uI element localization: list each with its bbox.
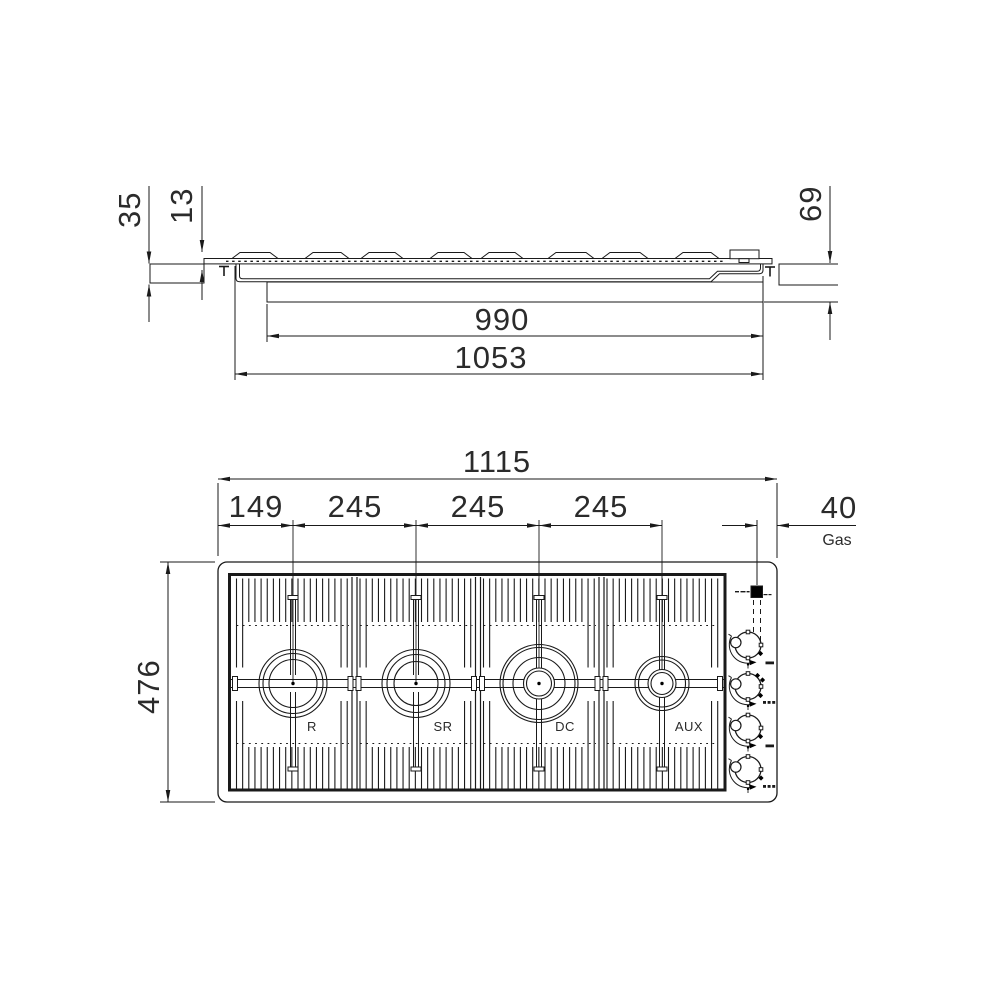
- knob-position-mark: [746, 698, 750, 702]
- grate-arm-cap: [411, 596, 421, 600]
- dimension-arrow: [751, 372, 763, 377]
- grate-arm-cap: [348, 677, 353, 691]
- dimension-arrow: [147, 285, 152, 297]
- knob-position-mark: [746, 656, 750, 660]
- dim-476-label: 476: [131, 659, 166, 714]
- gas-connection-micro-text: [764, 594, 768, 595]
- knob-position-mark: [746, 755, 750, 759]
- knob-position-mark: [746, 781, 750, 785]
- worktop-right: [779, 264, 838, 285]
- grate-arm-cap: [657, 767, 667, 771]
- dim-245b-label: 245: [451, 489, 506, 524]
- gas-connection-micro-text: [769, 594, 772, 595]
- dim-40-label: 40: [821, 490, 857, 525]
- side-elevation-view: 35 13 69 990 1053: [112, 186, 838, 380]
- grate-arm-cap: [356, 677, 361, 691]
- knob-flame-mark: [747, 705, 749, 707]
- top-plan-view: 1115 149 245 245 245 40 Gas 476 R SR DC …: [131, 444, 857, 802]
- knob-flame-mark: [747, 663, 749, 665]
- flame-level-dots: [763, 701, 766, 704]
- knob-position-mark: [746, 630, 750, 634]
- hob-lower-body: [267, 282, 763, 302]
- dim-245a-label: 245: [328, 489, 383, 524]
- dimension-arrow: [235, 372, 247, 377]
- burner-label-r: R: [307, 719, 317, 734]
- knob-ignition-circle: [731, 679, 741, 689]
- pan-support-foot: [305, 253, 349, 259]
- top-view-geometry: [160, 477, 856, 802]
- knob-flame-mark: [747, 746, 749, 748]
- gas-connection-micro-text: [735, 591, 739, 592]
- dimension-arrow: [200, 240, 205, 252]
- pan-support-foot: [481, 253, 523, 259]
- grate-arm-cap: [288, 767, 298, 771]
- grate-arm-cap: [288, 596, 298, 600]
- dimension-arrow: [166, 790, 171, 802]
- flame-level-dash: [766, 662, 775, 665]
- knob-flame-mark: [747, 788, 749, 790]
- dimension-arrow: [147, 252, 152, 264]
- flame-level-dots: [763, 785, 766, 788]
- dim-69-label: 69: [793, 186, 828, 222]
- flame-level-dots: [772, 701, 775, 704]
- dim-990-label: 990: [475, 302, 530, 337]
- dim-1053-label: 1053: [455, 340, 528, 375]
- dimension-arrow: [828, 302, 833, 314]
- knob-position-mark: [746, 739, 750, 743]
- grate-arm-cap: [472, 677, 477, 691]
- pan-support-foot: [361, 253, 403, 259]
- burner-center-dot: [537, 682, 540, 685]
- pan-support-foot: [232, 253, 278, 259]
- dim-245c-label: 245: [574, 489, 629, 524]
- knob-position-mark: [746, 713, 750, 717]
- pan-support-foot: [430, 253, 472, 259]
- grate-arm-cap: [480, 677, 485, 691]
- dimension-arrow: [828, 251, 833, 263]
- grate-arm-cap: [411, 767, 421, 771]
- burner-center-dot: [414, 682, 417, 685]
- dimension-arrow: [751, 334, 763, 339]
- burner-label-sr: SR: [433, 719, 452, 734]
- knob-profile: [730, 250, 759, 259]
- gas-connection-micro-text: [741, 591, 746, 592]
- gas-connection-square: [751, 586, 763, 598]
- dimension-arrow: [293, 523, 305, 528]
- burner-label-aux: AUX: [675, 719, 703, 734]
- pan-support-foot: [675, 253, 719, 259]
- flame-level-dots: [768, 785, 771, 788]
- dimension-arrow: [650, 523, 662, 528]
- flame-level-dots: [768, 701, 771, 704]
- gas-connection-micro-text: [747, 591, 750, 592]
- grate-arm-cap: [595, 677, 600, 691]
- grate-arm-cap: [534, 767, 544, 771]
- dimension-arrow: [166, 562, 171, 574]
- dimension-arrow: [745, 523, 757, 528]
- pan-support-foot: [602, 253, 648, 259]
- dimension-arrow: [267, 334, 279, 339]
- burner-center-dot: [291, 682, 294, 685]
- flame-level-dots: [772, 785, 775, 788]
- grate-arm-cap: [718, 677, 723, 691]
- knob-ignition-circle: [731, 720, 741, 730]
- knob-position-mark: [759, 726, 763, 730]
- dimension-arrow: [404, 523, 416, 528]
- gas-hob-technical-drawing: 35 13 69 990 1053 1115 149 245 245 245 4…: [0, 0, 1000, 1000]
- dimension-arrow: [218, 477, 230, 482]
- dim-13-label: 13: [164, 188, 199, 224]
- burner-center-dot: [660, 682, 663, 685]
- dimension-arrow: [527, 523, 539, 528]
- flame-level-dash: [766, 745, 775, 748]
- knob-position-mark: [746, 672, 750, 676]
- knob-position-mark: [759, 643, 763, 647]
- dimension-arrow: [539, 523, 551, 528]
- grate-arm-cap: [603, 677, 608, 691]
- dim-1115-label: 1115: [463, 444, 531, 479]
- worktop-left: [150, 264, 204, 283]
- dimension-arrow: [777, 523, 789, 528]
- knob-position-mark: [759, 685, 763, 689]
- knob-profile-stem: [739, 259, 749, 263]
- knob-ignition-circle: [731, 637, 741, 647]
- dimension-arrow: [416, 523, 428, 528]
- knob-position-mark: [759, 768, 763, 772]
- gas-connection-label: Gas: [822, 532, 851, 549]
- page: 35 13 69 990 1053 1115 149 245 245 245 4…: [0, 0, 1000, 1000]
- pan-support-foot: [548, 253, 594, 259]
- dimension-arrow: [765, 477, 777, 482]
- grate-arm-cap: [657, 596, 667, 600]
- dim-149-label: 149: [229, 489, 284, 524]
- grate-arm-cap: [534, 596, 544, 600]
- grate-arm-cap: [233, 677, 238, 691]
- dim-35-label: 35: [112, 192, 147, 228]
- burner-label-dc: DC: [555, 719, 575, 734]
- knob-ignition-circle: [731, 762, 741, 772]
